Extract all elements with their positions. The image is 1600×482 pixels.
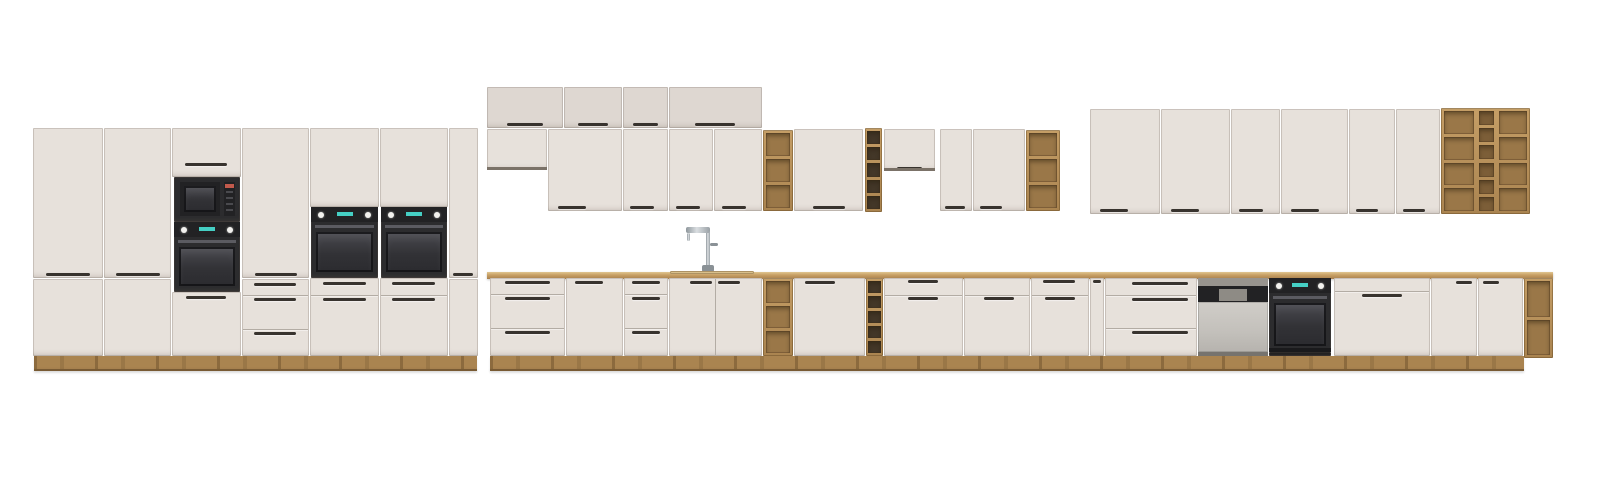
shelf-compartment [1444,137,1474,160]
base-door-3 [1431,278,1477,356]
base-end-shelf [1524,278,1553,358]
door-handle [453,273,473,276]
door-handle [630,206,654,209]
dishwasher-handle-recess [1219,289,1247,301]
base-drawers-2 [624,278,668,356]
oven-door-handle [1273,296,1327,299]
shelf-compartment [867,163,880,176]
wall-cab-11 [1281,109,1348,214]
door-handle [676,206,700,209]
oven-column-1-drawers [310,278,379,356]
oven-knob [434,212,440,218]
door-handle [323,298,366,301]
base-door-4 [1478,278,1523,356]
base-wine-rack [866,278,883,356]
top-box-1 [487,87,563,128]
base-double-door [884,278,963,356]
front-seam [243,295,308,296]
door-handle [695,123,735,126]
door-handle [980,206,1002,209]
dishwasher-panel [1198,286,1268,302]
floor-shadow-right [490,369,1524,372]
door-handle [505,281,550,284]
shelf-compartment [1029,159,1057,182]
door-handle [1100,209,1128,212]
microwave-window [184,186,216,212]
wall-cab-short-2 [884,129,935,171]
microwave-button [226,209,233,211]
shelf-compartment [1479,111,1494,125]
base-door-1 [566,278,623,356]
shelf-compartment [766,306,790,328]
shelf-compartment [867,147,880,160]
door-handle [116,273,160,276]
door-handle [633,123,658,126]
tall-door-2-lower [104,279,171,356]
shelf-compartment [1499,163,1527,186]
door-handle [392,282,435,285]
door-handle [505,331,550,334]
shelf-compartment [868,281,881,293]
oven-door-handle [315,225,374,228]
oven-control-panel [311,207,378,222]
shelf-compartment [868,326,881,338]
oven-window [179,247,235,286]
shelf-compartment [1479,145,1494,159]
base-door-2 [794,278,865,356]
door-handle [1045,297,1075,300]
door-handle [1483,281,1499,284]
wall-cab-short-1 [487,129,547,170]
faucet-spout [686,227,710,233]
oven-knob [365,212,371,218]
tall-door-1-upper [33,128,103,278]
kitchen-cabinet-set-render [0,0,1600,482]
wall-cab-2 [623,129,668,211]
tall-door-3-upper [242,128,309,278]
door-handle [392,298,435,301]
door-handle [1403,209,1425,212]
door-handle [1132,331,1188,334]
wall-cab-1 [548,129,622,211]
front-seam [1335,291,1429,292]
door-handle [1132,298,1188,301]
wall-open-shelf-1 [763,130,793,211]
oven-display [199,227,215,231]
shelf-compartment [1499,137,1527,160]
oven-knob [227,227,233,233]
wall-cab-13 [1396,109,1440,214]
wall-open-shelf-2 [1026,130,1060,211]
wall-cab-12 [1349,109,1395,214]
wall-cab-9 [1161,109,1230,214]
oven-control-panel [1269,278,1331,293]
dishwasher-front [1198,302,1268,352]
door-handle [813,206,845,209]
wall-cab-8 [1090,109,1160,214]
front-seam [243,329,308,330]
faucet-pipe [706,231,710,267]
shelf-compartment [1479,128,1494,142]
oven-door-handle [385,225,443,228]
oven-knob [181,227,187,233]
wall-shelving-unit [1441,108,1530,214]
door-handle [1362,294,1402,297]
door-handle [254,298,296,301]
oven-window [386,232,442,272]
shelf-compartment [1444,188,1474,211]
built-in-oven-4 [1269,278,1331,352]
base-filler [1090,278,1104,356]
wall-cab-4 [714,129,762,211]
oven-knob [1276,283,1282,289]
built-in-oven-2 [311,207,378,278]
front-seam [625,294,667,295]
door-handle [254,332,296,335]
door-handle [984,297,1014,300]
door-handle [1356,209,1378,212]
shelf-compartment [1444,111,1474,134]
door-handle [722,206,746,209]
door-handle [805,281,835,284]
microwave-display [225,184,234,188]
micro-column-top-door [172,128,241,177]
shelf-compartment [867,131,880,144]
oven-door-handle [178,240,236,243]
door-handle [632,331,660,334]
door-handle [575,281,603,284]
door-handle [1171,209,1199,212]
door-handle [1239,209,1263,212]
tall-drawers-1 [242,279,309,356]
wall-cab-6 [940,129,972,211]
shelf-compartment [766,185,790,208]
base-drawer-door-1 [964,278,1030,356]
oven-knob [318,212,324,218]
base-drawers-1 [490,278,565,356]
wall-cab-5 [794,129,863,211]
door-handle [908,297,938,300]
front-seam [1032,295,1088,296]
top-box-3 [623,87,668,128]
oven-knob [388,212,394,218]
front-seam [885,295,962,296]
micro-column-bottom-door [172,292,241,356]
dishwasher-top-controls [1198,278,1268,286]
oven-control-panel [381,207,447,222]
shelf-compartment [1029,185,1057,208]
front-seam [491,294,564,295]
faucet-outlet [687,233,690,241]
oven-knob [1318,283,1324,289]
tall-door-2-upper [104,128,171,278]
door-handle [185,163,227,166]
shelf-compartment [868,296,881,308]
wall-cab-3 [669,129,713,211]
oven-column-2-drawers [380,278,448,356]
door-handle [46,273,90,276]
door-handle [186,296,226,299]
front-seam [381,295,447,296]
shelf-compartment [766,331,790,353]
door-handle [1043,280,1075,283]
front-seam [965,295,1029,296]
floor-shadow-left [34,369,477,372]
built-in-oven-1 [174,222,240,292]
door-handle [558,206,586,209]
shelf-compartment [1499,188,1527,211]
oven-column-1-top-door [310,128,379,207]
base-drawer-door-2 [1031,278,1089,356]
door-handle [1132,282,1188,285]
sink-rim [670,271,754,274]
wall-cab-7 [973,129,1025,211]
microwave-controls [224,182,235,216]
front-seam [311,295,378,296]
door-handle [945,206,965,209]
shelf-compartment [1499,111,1527,134]
built-in-microwave [174,177,240,222]
tall-door-1-lower [33,279,103,356]
microwave-button [226,203,233,205]
door-handle [690,281,712,284]
oven-display [406,212,422,216]
tall-door-4-lower [449,279,478,356]
front-seam [625,328,667,329]
carcass-shadow [487,167,547,170]
shelf-compartment [867,180,880,193]
door-handle [632,297,660,300]
door-handle [507,123,543,126]
microwave-button [226,197,233,199]
front-seam [715,279,716,355]
shelf-compartment [1444,163,1474,186]
tall-door-4-upper [449,128,478,278]
base-drawers-4 [1334,278,1430,356]
base-drawers-3 [1105,278,1197,356]
oven-window [316,232,373,272]
door-handle [1456,281,1472,284]
oven-window [1274,303,1326,346]
sink-cabinet [669,278,762,356]
shelf-compartment [868,341,881,353]
top-box-2 [564,87,622,128]
shelf-compartment [766,133,790,156]
faucet-lever [710,243,718,246]
door-handle [254,283,296,286]
front-seam [1106,328,1196,329]
shelf-compartment [867,196,880,209]
door-handle [255,273,297,276]
shelf-compartment [1527,281,1550,317]
oven-control-panel [174,222,240,237]
wall-cab-10 [1231,109,1280,214]
top-box-4 [669,87,762,128]
oven-display [337,212,353,216]
oven-display [1292,283,1308,287]
door-handle [1093,280,1101,283]
carcass-shadow [884,168,935,171]
door-handle [1291,209,1319,212]
dishwasher [1198,278,1268,356]
shelf-compartment [1527,320,1550,356]
shelf-compartment [766,281,790,303]
wall-wine-rack [865,128,882,212]
shelf-compartment [766,159,790,182]
microwave-button [226,191,233,193]
shelf-compartment [1479,197,1494,211]
door-handle [718,281,740,284]
shelf-compartment [868,311,881,323]
faucet [686,225,718,272]
door-handle [632,281,660,284]
door-handle [323,282,366,285]
built-in-oven-3 [381,207,447,278]
shelf-compartment [1479,163,1494,177]
door-handle [908,280,938,283]
shelf-compartment [1029,133,1057,156]
front-seam [1106,295,1196,296]
base-open-shelf [763,278,793,356]
door-handle [578,123,608,126]
shelf-compartment [1479,180,1494,194]
front-seam [491,328,564,329]
door-handle [505,297,550,300]
oven-column-2-top-door [380,128,448,207]
